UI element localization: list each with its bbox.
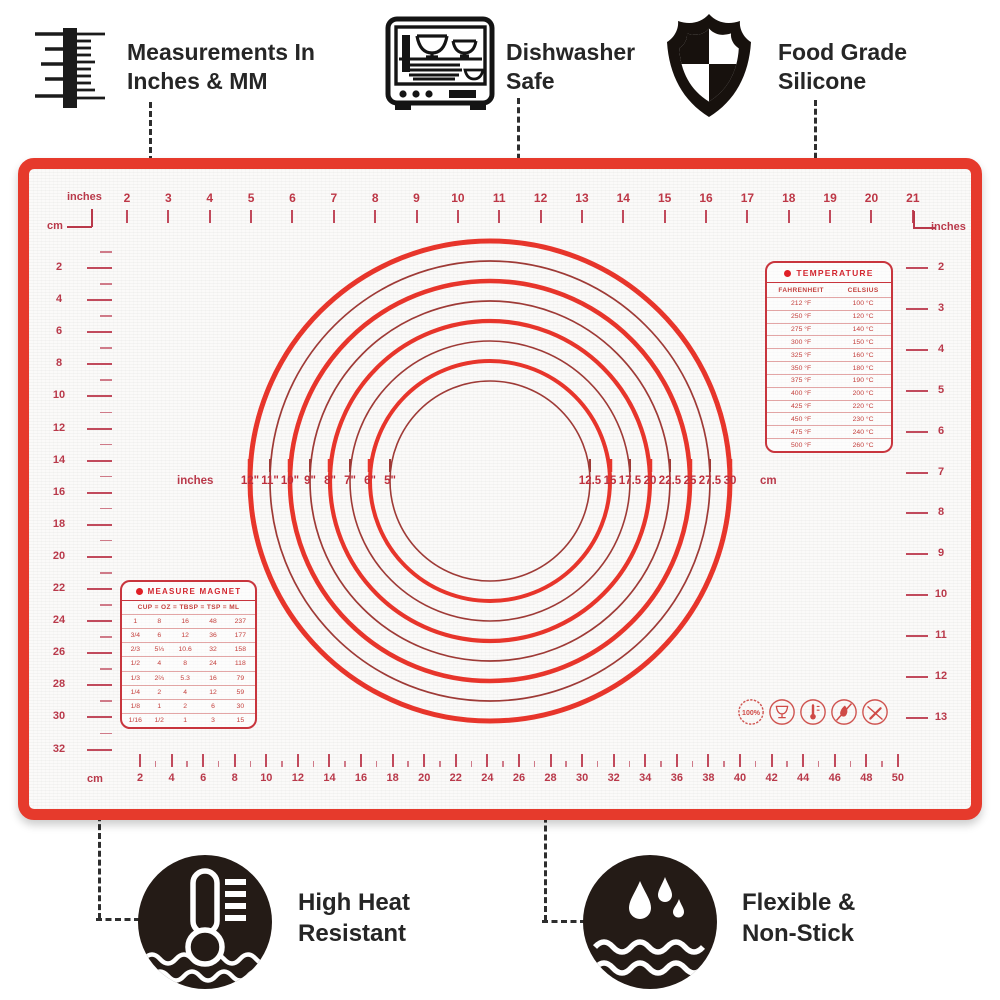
fahrenheit-value: 400 °F [767, 390, 835, 397]
measure-value: 5⅓ [149, 646, 170, 653]
temperature-row: 300 °F150 °C [767, 335, 891, 348]
callout-dishwasher: Dishwasher Safe [506, 38, 635, 97]
callout-measurements-line2: Inches & MM [127, 67, 315, 96]
measure-value: 30 [226, 703, 255, 710]
measure-value: 2 [149, 689, 170, 696]
fahrenheit-value: 300 °F [767, 339, 835, 346]
measure-value: 16 [200, 675, 225, 682]
measure-value: 1/16 [122, 717, 149, 724]
thermometer-badge-icon [799, 697, 827, 727]
temperature-row: 250 °F120 °C [767, 310, 891, 323]
callout-food-grade-line2: Silicone [778, 67, 907, 96]
temperature-row: 400 °F200 °C [767, 387, 891, 400]
measure-dot-icon [136, 588, 143, 595]
measure-value: 2⅔ [149, 675, 170, 682]
connector-high-heat-h [96, 918, 140, 921]
callout-food-grade-line1: Food Grade [778, 38, 907, 67]
measure-value: 16 [170, 618, 201, 625]
measure-row: 3/461236177 [122, 628, 255, 642]
measure-header: CUP = OZ = TBSP = TSP = ML [122, 604, 255, 611]
measure-value: 6 [149, 632, 170, 639]
measure-value: 3 [200, 717, 225, 724]
certification-badges: 100% [737, 697, 889, 727]
callout-high-heat-line2: Resistant [298, 919, 410, 950]
measure-rows: 1816482373/4612361772/35⅓10.6321581/2482… [122, 614, 255, 727]
measure-value: 10.6 [170, 646, 201, 653]
temperature-col-celsius: CELSIUS [835, 287, 891, 294]
no-flame-badge-icon [830, 697, 858, 727]
temperature-rows: 212 °F100 °C250 °F120 °C275 °F140 °C300 … [767, 297, 891, 451]
temperature-row: 375 °F190 °C [767, 374, 891, 387]
ruler-icon [33, 26, 107, 110]
dishwasher-icon [383, 14, 499, 116]
measure-value: 4 [149, 660, 170, 667]
measure-value: 4 [170, 689, 201, 696]
callout-food-grade: Food Grade Silicone [778, 38, 907, 97]
measure-value: 12 [170, 632, 201, 639]
fahrenheit-value: 275 °F [767, 326, 835, 333]
temperature-title: TEMPERATURE [796, 268, 873, 278]
measure-row: 1/32⅔5.31679 [122, 671, 255, 685]
measure-value: 5.3 [170, 675, 201, 682]
circle-diameter-label: 30 [710, 475, 750, 487]
measure-value: 32 [200, 646, 225, 653]
celsius-value: 150 °C [835, 339, 891, 346]
fahrenheit-value: 212 °F [767, 300, 835, 307]
measure-row: 1/4241259 [122, 685, 255, 699]
measure-value: 24 [200, 660, 225, 667]
measure-row: 1/161/21315 [122, 713, 255, 727]
celsius-value: 160 °C [835, 352, 891, 359]
celsius-value: 220 °C [835, 403, 891, 410]
callout-measurements: Measurements In Inches & MM [127, 38, 315, 97]
measure-value: 36 [200, 632, 225, 639]
temperature-row: 212 °F100 °C [767, 297, 891, 310]
celsius-value: 180 °C [835, 365, 891, 372]
callout-high-heat: High Heat Resistant [298, 888, 410, 949]
measure-value: 1/2 [122, 660, 149, 667]
measure-value: 8 [170, 660, 201, 667]
fahrenheit-value: 475 °F [767, 429, 835, 436]
measure-value: 48 [200, 618, 225, 625]
cup-badge-icon [768, 697, 796, 727]
measure-row: 1/24824118 [122, 656, 255, 670]
celsius-value: 240 °C [835, 429, 891, 436]
callout-measurements-line1: Measurements In [127, 38, 315, 67]
measure-magnet-table: MEASURE MAGNET CUP = OZ = TBSP = TSP = M… [120, 580, 257, 729]
temperature-row: 275 °F140 °C [767, 323, 891, 336]
measure-value: 79 [226, 675, 255, 682]
temperature-row: 425 °F220 °C [767, 400, 891, 413]
celsius-value: 200 °C [835, 390, 891, 397]
silicone-mat: inches 23456789101112131415161718192021 … [18, 158, 982, 820]
callout-flexible-line1: Flexible & [742, 888, 855, 919]
fahrenheit-value: 500 °F [767, 442, 835, 449]
measure-value: 1/4 [122, 689, 149, 696]
temperature-row: 500 °F260 °C [767, 438, 891, 451]
no-knife-badge-icon [861, 697, 889, 727]
measure-value: 1 [122, 618, 149, 625]
temperature-row: 450 °F230 °C [767, 412, 891, 425]
temperature-dot-icon [784, 270, 791, 277]
callout-flexible-line2: Non-Stick [742, 919, 855, 950]
callout-dishwasher-line2: Safe [506, 67, 635, 96]
baking-mat-infographic: Measurements In Inches & MM Dishwasher S… [0, 0, 1000, 1000]
connector-flexible-h [542, 920, 586, 923]
measure-value: 1 [149, 703, 170, 710]
measure-title: MEASURE MAGNET [148, 587, 242, 596]
celsius-value: 260 °C [835, 442, 891, 449]
measure-value: 1/2 [149, 717, 170, 724]
measure-value: 59 [226, 689, 255, 696]
fahrenheit-value: 250 °F [767, 313, 835, 320]
measure-value: 8 [149, 618, 170, 625]
fahrenheit-value: 325 °F [767, 352, 835, 359]
temperature-table: TEMPERATURE FAHRENHEIT CELSIUS 212 °F100… [765, 261, 893, 453]
temperature-row: 325 °F160 °C [767, 348, 891, 361]
measure-value: 3/4 [122, 632, 149, 639]
svg-text:100%: 100% [742, 710, 761, 717]
shield-icon [660, 8, 758, 124]
callout-high-heat-line1: High Heat [298, 888, 410, 919]
callout-flexible: Flexible & Non-Stick [742, 888, 855, 949]
100-percent-badge-icon: 100% [737, 697, 765, 727]
measure-row: 181648237 [122, 614, 255, 628]
circle-labels-right-unit: cm [760, 475, 777, 487]
celsius-value: 120 °C [835, 313, 891, 320]
measure-value: 2/3 [122, 646, 149, 653]
temperature-row: 350 °F180 °C [767, 361, 891, 374]
measure-value: 15 [226, 717, 255, 724]
callout-dishwasher-line1: Dishwasher [506, 38, 635, 67]
measure-value: 2 [170, 703, 201, 710]
measure-value: 177 [226, 632, 255, 639]
measure-value: 6 [200, 703, 225, 710]
celsius-value: 140 °C [835, 326, 891, 333]
measure-value: 158 [226, 646, 255, 653]
fahrenheit-value: 350 °F [767, 365, 835, 372]
celsius-value: 100 °C [835, 300, 891, 307]
high-heat-icon [138, 855, 272, 989]
flexible-icon [583, 855, 717, 989]
measure-value: 1 [170, 717, 201, 724]
measure-value: 118 [226, 660, 255, 667]
measure-value: 12 [200, 689, 225, 696]
measure-row: 1/812630 [122, 699, 255, 713]
celsius-value: 190 °C [835, 377, 891, 384]
fahrenheit-value: 375 °F [767, 377, 835, 384]
measure-row: 2/35⅓10.632158 [122, 642, 255, 656]
fahrenheit-value: 450 °F [767, 416, 835, 423]
measure-value: 237 [226, 618, 255, 625]
celsius-value: 230 °C [835, 416, 891, 423]
fahrenheit-value: 425 °F [767, 403, 835, 410]
temperature-col-fahrenheit: FAHRENHEIT [767, 287, 835, 294]
temperature-row: 475 °F240 °C [767, 425, 891, 438]
measure-value: 1/3 [122, 675, 149, 682]
measure-value: 1/8 [122, 703, 149, 710]
